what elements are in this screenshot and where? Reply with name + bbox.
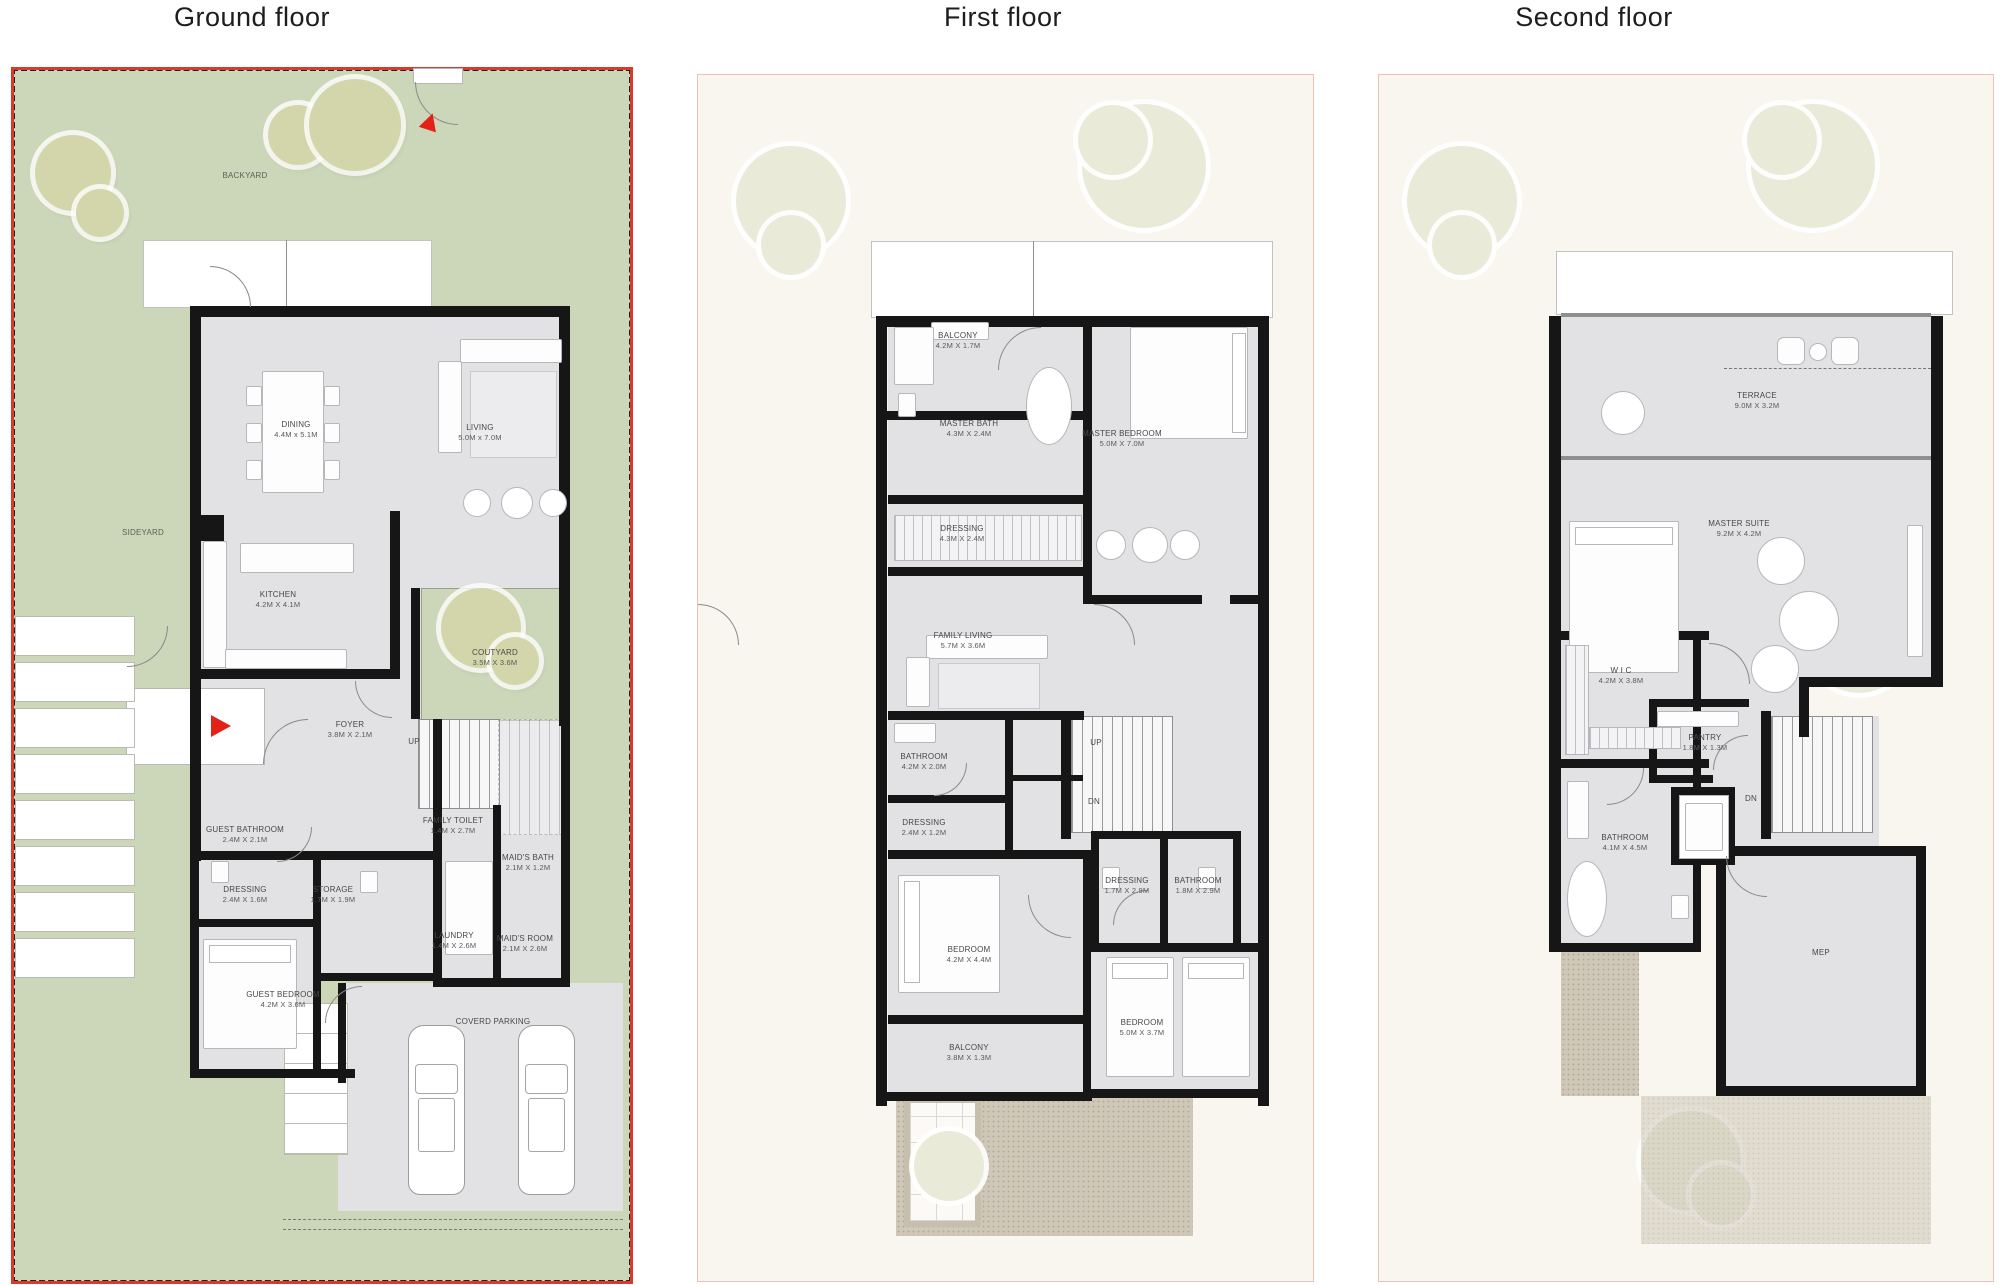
terrace-chair — [1831, 337, 1859, 365]
wall — [1091, 1089, 1269, 1098]
door-swing — [325, 986, 362, 1023]
roof-divider — [286, 240, 287, 306]
room-label-courtyard: COUTYARD3.5M X 3.6M — [472, 648, 518, 668]
wall — [1549, 759, 1709, 768]
stairs-dn-label: DN — [1745, 794, 1757, 804]
master-bed — [1130, 327, 1248, 439]
terrace-edge — [1561, 313, 1931, 317]
room-label-balcony-2: BALCONY3.8M X 1.3M — [947, 1043, 992, 1063]
stairs-dn-label: DN — [1088, 797, 1100, 807]
wall — [888, 567, 1083, 576]
lounge-chair — [1601, 391, 1645, 435]
room-label-bathroom: BATHROOM4.2M X 2.0M — [900, 752, 947, 772]
family-sofa — [906, 657, 930, 707]
tree-icon — [1747, 105, 1817, 175]
wc — [898, 393, 916, 417]
wall — [1916, 846, 1926, 1096]
armchair — [1757, 537, 1805, 585]
pantry-shelf — [1657, 711, 1739, 727]
closet — [1589, 727, 1681, 749]
wc — [360, 871, 378, 893]
wall — [1649, 775, 1713, 783]
shower — [894, 327, 934, 385]
vanity — [1567, 781, 1589, 839]
roof-band — [871, 241, 1273, 318]
garden-step — [15, 754, 135, 794]
side-chair — [539, 489, 567, 517]
room-label-bathroom: BATHROOM4.1M X 4.5M — [1601, 833, 1648, 853]
room-label-dressing: DRESSING4.3M X 2.4M — [940, 524, 985, 544]
stairs-up-label: UP — [1090, 738, 1102, 748]
kitchen-hob — [225, 649, 347, 669]
round-table — [1779, 591, 1839, 651]
roof-band — [143, 240, 432, 308]
garden-step — [15, 662, 135, 702]
window-line — [1561, 456, 1931, 460]
room-label-backyard: BACKYARD — [222, 171, 267, 181]
side-chair — [501, 487, 533, 519]
chair — [246, 386, 262, 406]
console — [1907, 525, 1923, 657]
wall — [411, 588, 420, 719]
stairs-up — [418, 719, 500, 809]
terrace-floor — [1561, 317, 1931, 456]
vanity — [894, 723, 936, 743]
wall — [1013, 775, 1083, 781]
roof-overhang-line — [1724, 368, 1931, 369]
bed-pillow — [1575, 527, 1673, 545]
room-label-maids-room: MAID'S ROOM2.1M X 2.6M — [497, 934, 553, 954]
room-label-kitchen: KITCHEN4.2M X 4.1M — [256, 590, 301, 610]
floorplan-sheet: Ground floor First floor Second floor — [0, 0, 2000, 1285]
ground-floor-panel: BACKYARD SIDEYARD DINING4.4M x 5.1M LIVI… — [12, 68, 632, 1283]
wall — [888, 850, 1091, 859]
tree-icon — [1432, 215, 1492, 275]
room-label-covered-parking: COVERD PARKING — [456, 1017, 531, 1027]
stairs-ghost — [498, 719, 563, 835]
room-label-terrace: TERRACE9.0M X 3.2M — [1735, 391, 1780, 411]
bed-pillow — [1232, 333, 1246, 433]
bed-pillow — [1188, 963, 1244, 979]
wall — [888, 795, 1013, 803]
roof-band — [1556, 251, 1953, 315]
car-windshield — [525, 1064, 568, 1094]
driveway-line — [283, 1229, 623, 1230]
room-label-mep: MEP — [1812, 948, 1830, 958]
wall — [190, 919, 321, 927]
wall — [1083, 316, 1092, 604]
wall — [1230, 595, 1269, 604]
car — [518, 1025, 575, 1195]
room-label-guest-bathroom: GUEST BATHROOM2.4M X 2.1M — [206, 825, 284, 845]
room-label-storage: STORAGE1.7M X 1.9M — [311, 885, 356, 905]
floor-title-ground: Ground floor — [174, 2, 330, 33]
car-roof — [528, 1098, 565, 1152]
shaft-door — [1685, 803, 1723, 851]
room-label-balcony: BALCONY4.2M X 1.7M — [936, 331, 981, 351]
armchair — [1751, 645, 1799, 693]
room-label-wic: W I C4.2M X 3.8M — [1599, 666, 1644, 686]
room-label-living: LIVING5.0M x 7.0M — [458, 423, 501, 443]
floor-title-second: Second floor — [1515, 2, 1673, 33]
stairs-down — [1771, 716, 1873, 833]
wardrobe — [894, 515, 1082, 561]
wall — [1091, 839, 1099, 943]
car-windshield — [415, 1064, 458, 1094]
pouf — [1132, 527, 1168, 563]
garden-step — [15, 616, 135, 656]
wall — [190, 1069, 355, 1078]
door-swing — [698, 604, 739, 645]
room-label-dining: DINING4.4M x 5.1M — [274, 420, 317, 440]
kitchen-counter — [203, 541, 227, 668]
wall — [190, 306, 201, 861]
garden-step — [15, 708, 135, 748]
bed-pillow — [1112, 963, 1168, 979]
car-roof — [418, 1098, 455, 1152]
garden-step — [15, 938, 135, 978]
wall — [1091, 943, 1269, 952]
stairs — [1071, 716, 1173, 833]
floor-title-first: First floor — [944, 2, 1062, 33]
wall — [1258, 316, 1269, 1106]
tree-icon — [309, 79, 401, 171]
room-label-master-bedroom: MASTER BEDROOM5.0M X 7.0M — [1082, 429, 1162, 449]
room-label-master-bath: MASTER BATH4.3M X 2.4M — [940, 419, 999, 439]
wall — [559, 306, 570, 726]
wall — [1160, 839, 1168, 943]
room-label-dressing: DRESSING2.4M X 1.6M — [223, 885, 268, 905]
wall — [1716, 846, 1726, 1096]
closet — [1565, 645, 1589, 755]
wall — [888, 711, 1084, 720]
terrace-chair — [1777, 337, 1805, 365]
wall — [1799, 677, 1809, 737]
bed-pillow — [209, 945, 291, 963]
room-label-family-living: FAMILY LIVING5.7M X 3.6M — [934, 631, 993, 651]
wall — [876, 1092, 1092, 1101]
chair — [324, 423, 340, 443]
bed-pillow — [904, 881, 920, 983]
second-floor-panel: TERRACE9.0M X 3.2M MASTER SUITE9.2M X 4.… — [1378, 74, 1994, 1282]
wall — [1716, 1086, 1926, 1096]
wall — [1091, 831, 1241, 839]
chair — [246, 423, 262, 443]
chair — [324, 460, 340, 480]
chair — [246, 460, 262, 480]
garden-step — [15, 846, 135, 886]
room-label-master-suite: MASTER SUITE9.2M X 4.2M — [1708, 519, 1770, 539]
tree-icon — [76, 189, 124, 237]
terrace-table — [1809, 343, 1827, 361]
wc — [1671, 895, 1689, 919]
wall — [1233, 839, 1241, 943]
wall — [888, 495, 1083, 504]
pouf — [1170, 530, 1200, 560]
pouf — [1096, 530, 1126, 560]
wall — [888, 1015, 1091, 1024]
wall — [1799, 677, 1943, 687]
rug — [470, 371, 557, 458]
wall — [876, 316, 887, 1106]
tree-icon — [761, 215, 821, 275]
car — [408, 1025, 465, 1195]
service-floor — [321, 851, 443, 978]
stairs-up-label: UP — [408, 737, 420, 747]
wall — [190, 306, 570, 317]
room-label-foyer: FOYER3.8M X 2.1M — [328, 720, 373, 740]
wall — [1549, 943, 1701, 952]
wall — [433, 978, 570, 987]
paved-strip — [1561, 952, 1639, 1096]
room-label-guest-bedroom: GUEST BEDROOM4.2M X 3.6M — [246, 990, 320, 1010]
wall — [190, 669, 400, 679]
entrance-arrow-icon — [211, 715, 231, 737]
roof-divider — [1033, 241, 1034, 316]
wall — [1761, 711, 1771, 839]
door-swing — [127, 626, 168, 667]
room-label-bedroom-2: BEDROOM5.0M X 3.7M — [1120, 1018, 1165, 1038]
bathtub — [1026, 367, 1072, 445]
garden-step — [15, 800, 135, 840]
driveway-line — [283, 1219, 623, 1220]
first-floor-panel: BALCONY4.2M X 1.7M MASTER BATH4.3M X 2.4… — [697, 74, 1314, 1282]
shaft — [198, 515, 224, 541]
chair — [324, 386, 340, 406]
paved-terrace-faded — [1641, 1096, 1931, 1244]
bathtub — [1567, 861, 1607, 937]
wall — [1092, 595, 1202, 604]
wall — [190, 851, 199, 1078]
room-label-pantry: PANTRY1.8M X 1.3M — [1683, 733, 1728, 753]
wall — [1549, 460, 1561, 952]
room-label-family-toilet: FAMILY TOILET1.4M X 2.7M — [423, 816, 483, 836]
room-label-dressing-2: DRESSING2.4M X 1.2M — [902, 818, 947, 838]
room-label-bathroom-2: BATHROOM1.8M X 2.9M — [1174, 876, 1221, 896]
wall — [1649, 699, 1749, 707]
rug — [938, 663, 1040, 709]
garden-step — [15, 892, 135, 932]
wall — [313, 973, 442, 981]
wall — [1931, 316, 1943, 462]
room-label-bedroom-1: BEDROOM4.2M X 4.4M — [947, 945, 992, 965]
side-chair — [463, 489, 491, 517]
room-label-dressing-3: DRESSING1.7M X 2.9M — [1105, 876, 1150, 896]
sofa — [460, 339, 562, 363]
wall — [1931, 460, 1943, 685]
tree-icon — [1078, 105, 1148, 175]
room-label-laundry: LAUNDRY1.4M X 2.6M — [432, 931, 477, 951]
wall — [1549, 316, 1561, 462]
wall — [1083, 850, 1091, 1092]
wall — [561, 726, 570, 987]
kitchen-island — [240, 543, 354, 573]
wall — [1005, 715, 1013, 850]
room-label-sideyard: SIDEYARD — [122, 528, 164, 538]
wall — [1716, 846, 1926, 856]
wc — [211, 861, 229, 883]
wall — [390, 511, 400, 679]
tree-icon — [914, 1131, 984, 1201]
room-label-maids-bath: MAID'S BATH2.1M X 1.2M — [502, 853, 554, 873]
